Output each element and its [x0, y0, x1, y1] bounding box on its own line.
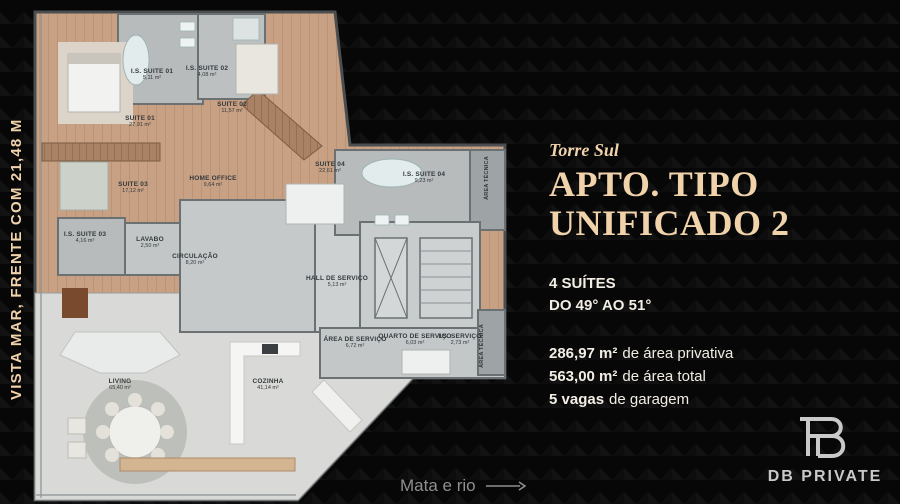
bed-service	[402, 350, 450, 374]
lavabo	[125, 223, 180, 275]
bathtub-1	[123, 35, 149, 85]
floor-plan: SUITE 0127,91 m²I.S. SUITE 015,11 m²I.S.…	[30, 10, 520, 502]
db-monogram-icon	[794, 410, 856, 462]
arrow-right-icon	[486, 481, 526, 491]
bath-suite-03	[58, 218, 125, 275]
area-tecnica-top	[470, 150, 505, 230]
info-panel: Torre Sul APTO. TIPO UNIFICADO 2 4 SUÍTE…	[549, 140, 879, 412]
spec-total-area: 563,00 m²de área total	[549, 365, 879, 388]
bed-suite-04	[286, 184, 344, 224]
bed-suite-03	[60, 162, 108, 210]
caption-text: Mata e rio	[400, 476, 476, 496]
suites-count: 4 SUÍTES	[549, 273, 879, 296]
vista-mar-banner: VISTA MAR, FRENTE COM 21,48 M	[8, 100, 25, 400]
bench	[120, 458, 295, 471]
tower-name: Torre Sul	[549, 140, 879, 161]
brand-name: DB PRIVATE	[766, 468, 884, 486]
floor-plan-svg	[30, 10, 520, 502]
spec-list: 286,97 m²de área privativa 563,00 m²de á…	[549, 342, 879, 412]
closet-suite-01	[42, 143, 160, 161]
area-tecnica-bottom	[478, 310, 505, 375]
bathtub-4	[362, 159, 422, 187]
page: VISTA MAR, FRENTE COM 21,48 M	[0, 0, 900, 504]
db-private-logo: DB PRIVATE	[766, 410, 884, 486]
spec-private-area: 286,97 m²de área privativa	[549, 342, 879, 365]
apartment-title: APTO. TIPO UNIFICADO 2	[549, 165, 879, 243]
tv-wall	[62, 288, 88, 318]
orientation-caption: Mata e rio	[400, 476, 526, 496]
floors-range: DO 49° AO 51°	[549, 295, 879, 318]
bed-suite-02	[236, 44, 278, 94]
spec-garage: 5 vagasde garagem	[549, 388, 879, 411]
apartment-subtitle: 4 SUÍTES DO 49° AO 51°	[549, 273, 879, 318]
